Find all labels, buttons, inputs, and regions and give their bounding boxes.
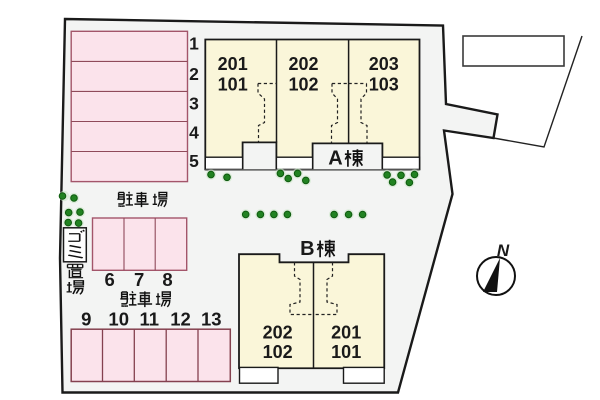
svg-text:6: 6 <box>104 269 114 290</box>
svg-text:9: 9 <box>81 308 91 329</box>
svg-text:101: 101 <box>218 74 248 94</box>
svg-text:103: 103 <box>369 74 399 94</box>
svg-text:201: 201 <box>218 54 248 74</box>
svg-text:201: 201 <box>331 323 361 343</box>
svg-text:102: 102 <box>263 342 293 362</box>
svg-text:5: 5 <box>189 151 199 171</box>
svg-text:7: 7 <box>134 269 144 290</box>
svg-text:4: 4 <box>189 123 199 143</box>
svg-text:10: 10 <box>108 308 129 329</box>
svg-text:A: A <box>328 148 342 170</box>
svg-text:202: 202 <box>263 323 293 343</box>
svg-text:N: N <box>497 241 510 260</box>
svg-text:11: 11 <box>140 308 160 329</box>
svg-text:2: 2 <box>189 64 199 84</box>
svg-text:101: 101 <box>331 342 361 362</box>
svg-text:202: 202 <box>288 54 318 74</box>
svg-text:13: 13 <box>201 308 222 329</box>
svg-text:12: 12 <box>170 308 191 329</box>
svg-text:3: 3 <box>189 94 199 114</box>
svg-text:B: B <box>300 238 314 260</box>
svg-text:8: 8 <box>162 269 172 290</box>
svg-text:203: 203 <box>369 54 399 74</box>
svg-text:102: 102 <box>288 74 318 94</box>
svg-text:1: 1 <box>189 34 199 54</box>
